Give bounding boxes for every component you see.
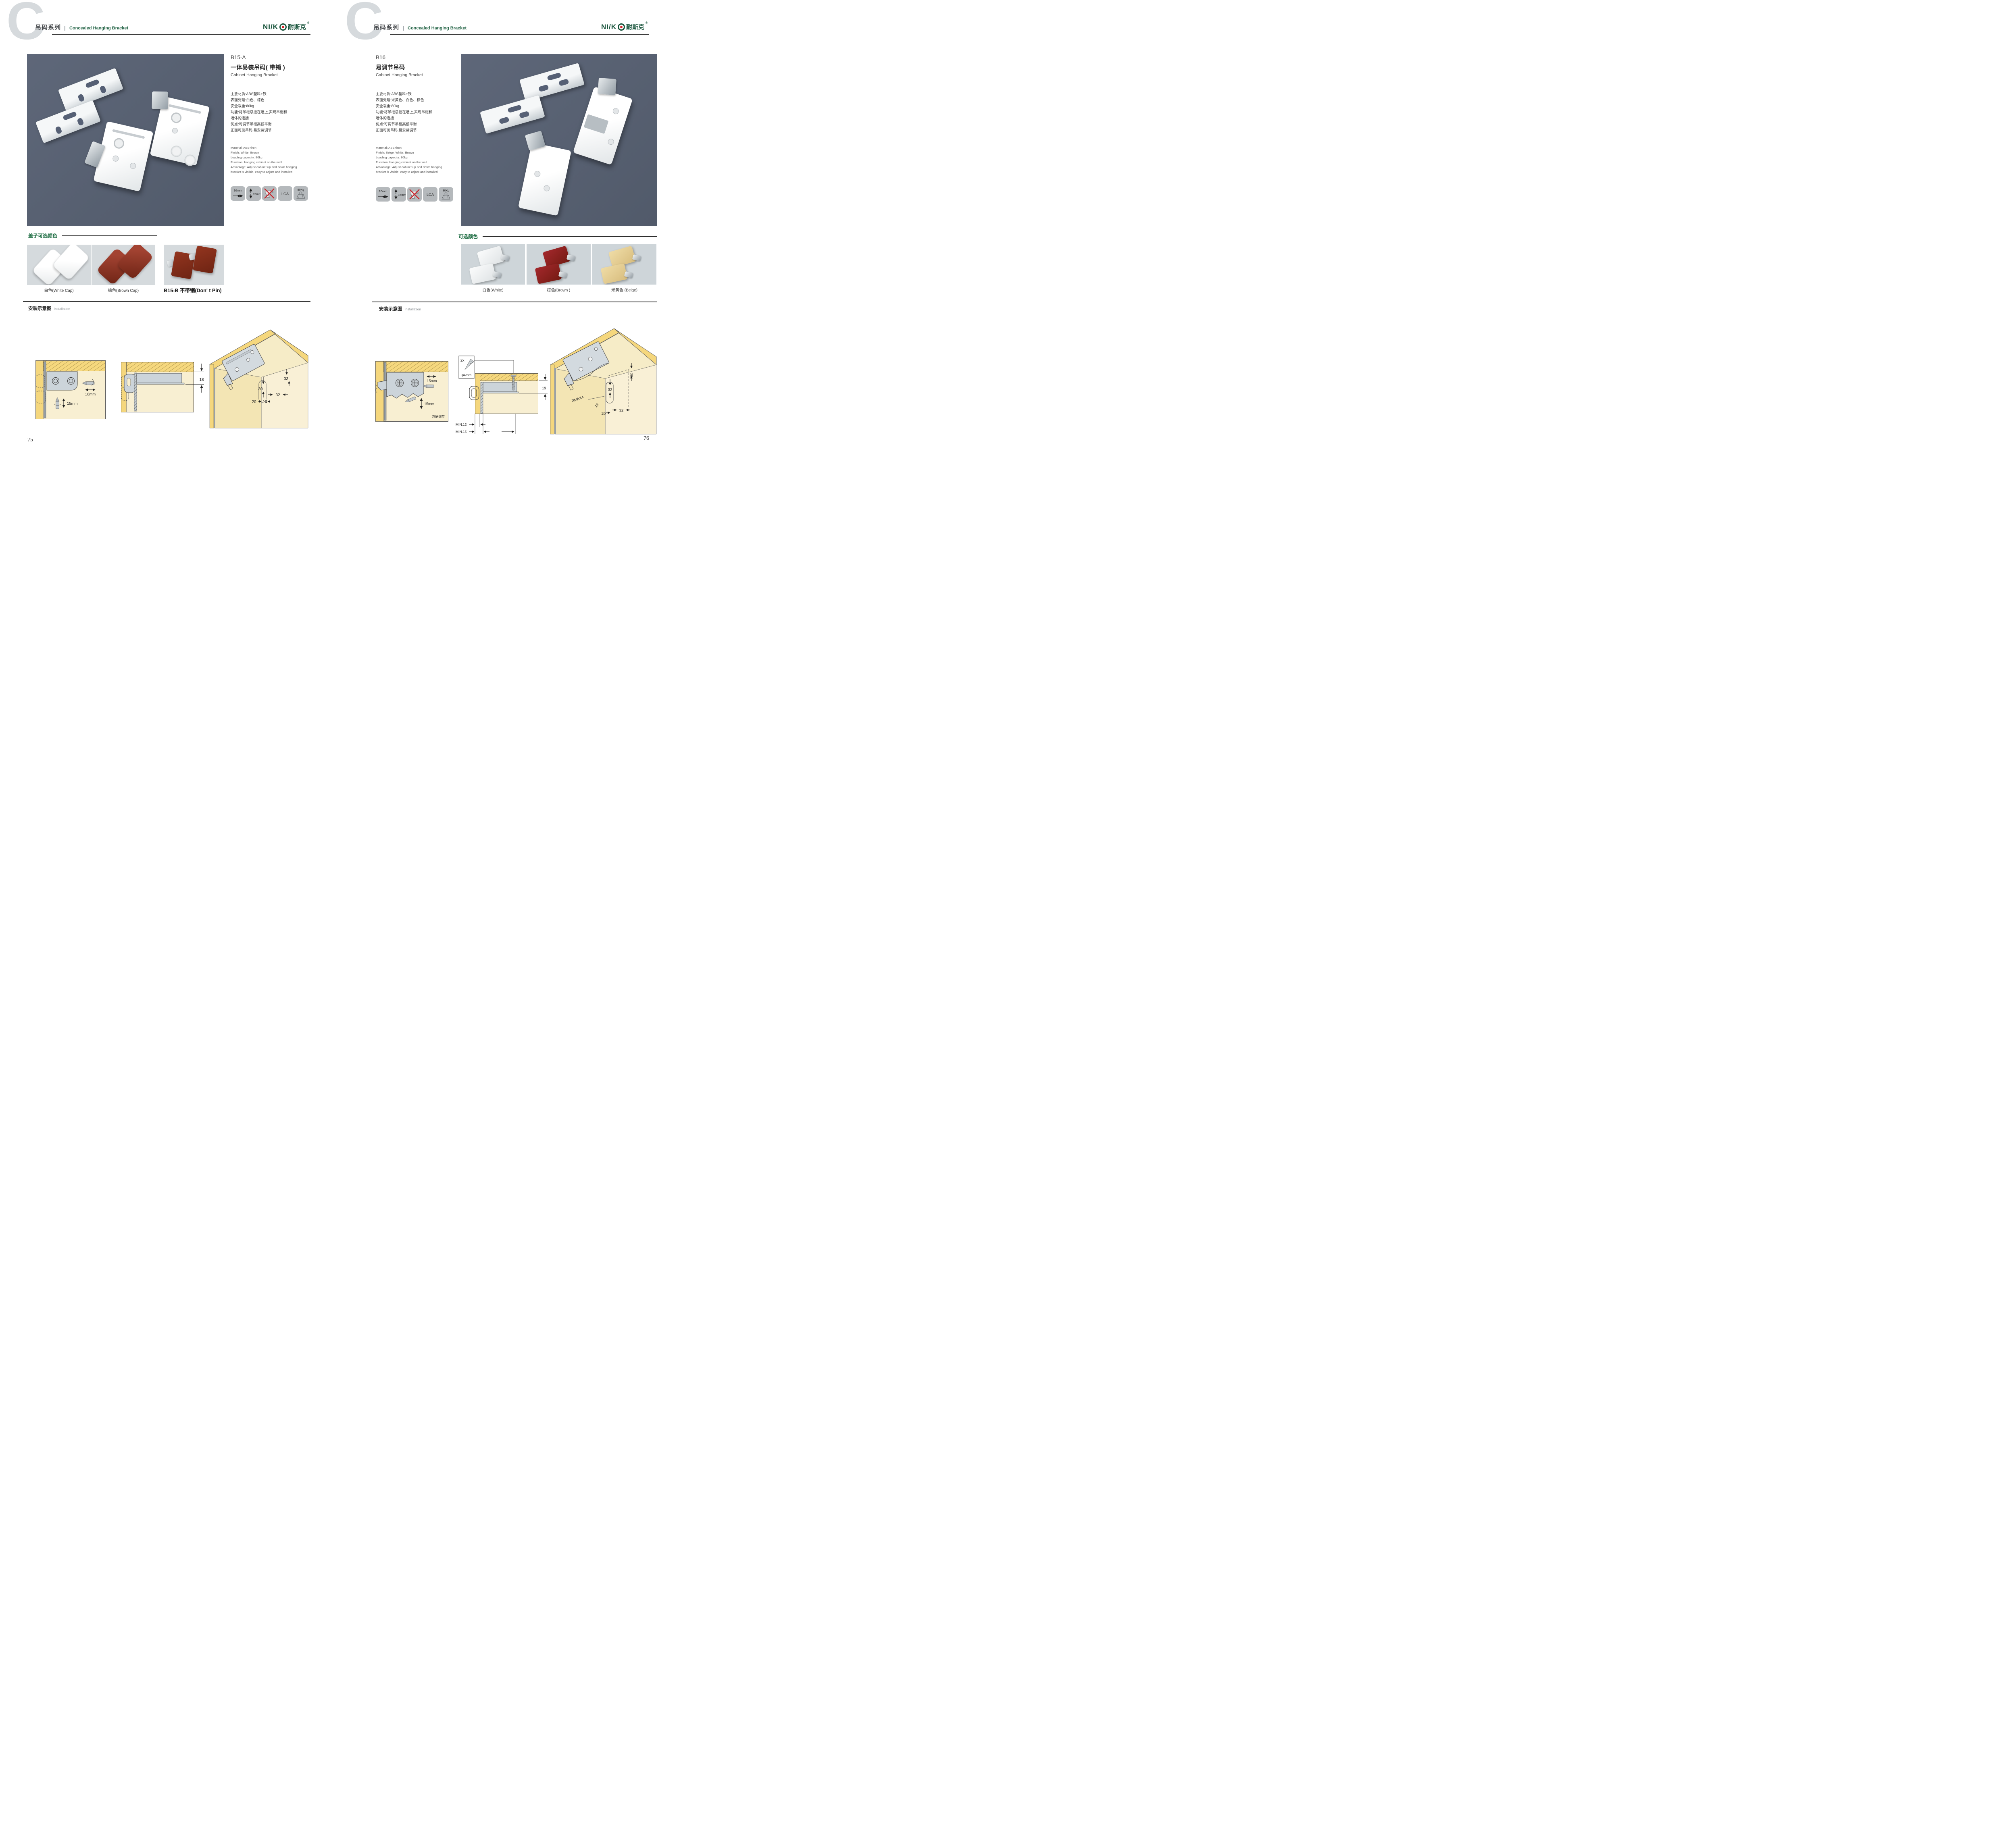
svg-text:LGA: LGA <box>427 193 434 197</box>
product-name-cn: 易调节吊码 <box>376 63 405 71</box>
v-arrow-icon: 15mm <box>392 187 406 201</box>
page-number: 76 <box>644 435 649 442</box>
svg-text:30: 30 <box>630 373 634 377</box>
colors-title: 可选颜色 <box>458 233 478 240</box>
brand-logo-latin: NI/K <box>601 23 616 31</box>
no-drill-glyph <box>408 187 421 201</box>
rail-slot <box>507 105 522 113</box>
adjust-knob <box>170 145 183 158</box>
install-diagram-section-front: 15mm 15mm 方便调节 <box>375 361 448 422</box>
spec-line: 优点:可调节吊柜高低平衡 <box>376 121 462 127</box>
rail-slot <box>62 111 77 121</box>
hanging-bracket-shape <box>573 87 633 165</box>
svg-text:15mm: 15mm <box>427 379 437 383</box>
swatch-white-cap <box>27 245 91 285</box>
rail-slot <box>55 126 62 134</box>
install-diagram-section-side: 18 <box>121 362 206 414</box>
specs-cn: 主要材质:ABS塑料+铁 表面处理:米黄色、白色、棕色 安全载重:80kg 功能… <box>376 91 462 133</box>
brand-logo-ring-icon <box>279 23 287 31</box>
svg-text:20: 20 <box>602 412 606 416</box>
bracket-shape <box>600 263 627 284</box>
brand-logo: NI/K 耐斯克 ® <box>263 23 309 31</box>
swatch-label: 米黄色 (Beige) <box>592 287 656 293</box>
brand-logo-dot-icon <box>620 26 623 28</box>
load-glyph: 80Kg <box>439 187 453 201</box>
bracket-hole <box>534 171 541 178</box>
swatch-b15b <box>164 245 224 285</box>
no-drill-glyph <box>262 187 276 200</box>
bracket-shape <box>193 245 217 274</box>
colors-title-rule <box>483 236 657 237</box>
svg-text:MIN.12: MIN.12 <box>456 422 467 426</box>
series-title: 吊码系列 <box>373 23 399 31</box>
specs-en: Material: ABS+iron Finish: White, Brown … <box>231 146 319 175</box>
svg-text:20: 20 <box>252 400 256 404</box>
spec-line: 表面处理:白色、棕色 <box>231 97 317 103</box>
installation-title-en: Installation <box>54 307 71 311</box>
bracket-hole <box>543 185 550 192</box>
lga-glyph: LGA <box>278 187 292 200</box>
svg-text:15mm: 15mm <box>398 193 406 197</box>
spec-line: bracket is visible, easy to adjust and i… <box>376 170 464 175</box>
spec-line: Function: hanging cabinet on the wall <box>376 160 464 165</box>
spec-line: 墙体的连接 <box>376 115 462 121</box>
bracket-hole <box>607 138 615 146</box>
spec-line: Advantage: Adjust cabinet up and down ha… <box>231 165 319 170</box>
specs-en: Material: ABS+iron Finish: Beige, White,… <box>376 146 464 175</box>
spec-line: 安全载重:80kg <box>376 103 462 109</box>
swatch-beige <box>592 244 656 285</box>
spec-line: 安全载重:80kg <box>231 103 317 109</box>
svg-text:15mm: 15mm <box>424 402 434 406</box>
lga-glyph: LGA <box>423 187 437 201</box>
svg-text:15mm: 15mm <box>67 401 77 406</box>
spec-line: 墙体的连接 <box>231 115 317 121</box>
install-diagram-perspective: 30 32 RMAX4 19 20 32 <box>550 328 657 435</box>
brand-logo-ring-icon <box>618 23 625 31</box>
spec-line: Loading capacity: 80kg <box>231 155 319 160</box>
spec-line: 正面可见吊码,易安装调节 <box>376 127 462 133</box>
svg-text:LGA: LGA <box>281 192 289 196</box>
svg-text:φ4mm: φ4mm <box>462 373 471 377</box>
adjust-knob <box>183 154 197 167</box>
rail-slot <box>499 116 510 124</box>
metal-hook-shape <box>598 78 616 95</box>
series-subtitle: Concealed Hanging Bracket <box>65 26 128 31</box>
bracket-shape <box>535 263 562 284</box>
colors-section-header: 盖子可选颜色 <box>28 232 157 239</box>
page-number: 75 <box>27 437 33 443</box>
install-diagram-section-front: 16mm 15mm <box>35 360 106 419</box>
spec-line: Loading capacity: 80kg <box>376 155 464 160</box>
section-divider <box>372 302 657 302</box>
bracket-hole <box>112 155 119 162</box>
wall-rail-shape <box>480 95 545 134</box>
product-photo-b15a <box>27 54 224 226</box>
bracket-shape <box>469 263 496 284</box>
h-arrow-icon: 16mm <box>231 187 245 200</box>
catalog-spread: C 吊码系列 Concealed Hanging Bracket NI/K 耐斯… <box>0 0 676 462</box>
svg-text:32: 32 <box>619 408 624 413</box>
swatch-label: 棕色(Brown ) <box>527 287 591 293</box>
spec-line: Finish: Beige, White, Brown <box>376 150 464 155</box>
hanging-bracket-shape <box>93 121 153 192</box>
product-photo-b16 <box>461 54 657 226</box>
spec-line: 正面可见吊码,易安装调节 <box>231 127 317 133</box>
height-icon: 15mm <box>392 187 406 202</box>
page-header: 吊码系列 Concealed Hanging Bracket <box>373 23 467 31</box>
brand-logo-dot-icon <box>282 26 284 28</box>
metal-hook-shape <box>84 141 106 168</box>
spec-line: bracket is visible, easy to adjust and i… <box>231 170 319 175</box>
spec-line: 优点:可调节吊柜高低平衡 <box>231 121 317 127</box>
colors-title-rule <box>62 235 157 236</box>
rail-slot <box>85 79 100 88</box>
rail-slot <box>99 85 107 94</box>
hanging-bracket-shape <box>518 142 571 216</box>
registered-mark: ® <box>307 22 309 25</box>
svg-text:19: 19 <box>542 386 546 391</box>
product-name-cn: 一体易装吊码( 带销 ) <box>231 63 285 71</box>
svg-text:16mm: 16mm <box>234 189 242 192</box>
bracket-screw <box>170 112 183 124</box>
svg-text:10mm: 10mm <box>379 189 387 193</box>
feature-icons: 10mm 15mm LGA 80K <box>376 187 453 202</box>
installation-title-cn: 安装示意图 <box>379 306 402 312</box>
hanging-bracket-shape <box>150 96 210 166</box>
page-header: 吊码系列 Concealed Hanging Bracket <box>35 23 128 31</box>
bracket-hole <box>612 107 620 115</box>
h-arrow-icon: 10mm <box>376 187 390 201</box>
load-glyph: 80Kg <box>294 187 308 200</box>
no-drill-icon <box>262 186 277 201</box>
install-diagram-section-side: 2x φ4mm 19 MIN.12 <box>455 355 550 435</box>
swatch-label: 白色(White Cap) <box>27 287 91 293</box>
wall-rail-shape <box>519 63 585 102</box>
spec-line: 主要材质:ABS塑料+铁 <box>376 91 462 97</box>
svg-text:80Kg: 80Kg <box>443 189 449 192</box>
brand-logo: NI/K 耐斯克 ® <box>601 23 648 31</box>
spec-line: Advantage: Adjust cabinet up and down ha… <box>376 165 464 170</box>
product-code: B15-A <box>231 54 246 60</box>
product-name-en: Cabinet Hanging Bracket <box>231 73 278 77</box>
load-icon: 80Kg <box>439 187 453 202</box>
bracket-slit <box>169 104 201 114</box>
spec-line: 功能:将吊柜悬挂在墙上,实现吊柜和 <box>376 109 462 115</box>
rail-slot <box>547 73 561 81</box>
spec-line: Material: ABS+iron <box>376 146 464 150</box>
svg-text:30: 30 <box>258 387 263 391</box>
header-rule <box>52 34 310 35</box>
installation-title-cn: 安装示意图 <box>28 305 52 312</box>
rail-slot <box>538 84 549 92</box>
spec-line: Finish: White, Brown <box>231 150 319 155</box>
height-icon: 15mm <box>246 186 261 201</box>
rail-slot <box>77 94 85 102</box>
phillips-screw <box>411 379 419 387</box>
cert-icon: LGA <box>423 187 437 202</box>
metal-hook-shape <box>152 92 168 110</box>
colors-title: 盖子可选颜色 <box>28 232 57 239</box>
series-title: 吊码系列 <box>35 23 61 31</box>
brand-logo-cn: 耐斯克 <box>626 23 644 31</box>
spec-line: Material: ABS+iron <box>231 146 319 150</box>
swatch-label: 白色(White) <box>461 287 525 293</box>
specs-cn: 主要材质:ABS塑料+铁 表面处理:白色、棕色 安全载重:80kg 功能:将吊柜… <box>231 91 317 133</box>
v-arrow-icon: 15mm <box>247 187 260 200</box>
spec-line: 表面处理:米黄色、白色、棕色 <box>376 97 462 103</box>
brand-logo-latin: NI/K <box>263 23 278 31</box>
install-diagram-perspective: 33 30 32 20 14 <box>209 329 309 429</box>
bracket-hole <box>129 162 137 169</box>
metal-hook-shape <box>525 131 546 151</box>
load-icon: 80Kg <box>294 186 308 201</box>
swatch-brown-cap <box>92 245 155 285</box>
swatch-brown <box>527 244 591 285</box>
width-icon: 16mm <box>231 186 245 201</box>
svg-text:32: 32 <box>275 393 280 397</box>
spec-line: Function: hanging cabinet on the wall <box>231 160 319 165</box>
svg-text:33: 33 <box>284 377 289 381</box>
installation-header: 安装示意图 Installation <box>379 306 421 312</box>
rail-slot <box>519 111 530 119</box>
svg-text:2x: 2x <box>460 358 464 362</box>
swatch-label: 棕色(Brown Cap) <box>92 287 155 293</box>
swatch-label-b15b: B15-B 不带销(Don' t Pin) <box>150 286 235 294</box>
svg-text:32: 32 <box>608 388 612 392</box>
swatch-white <box>461 244 525 285</box>
width-icon: 10mm <box>376 187 390 202</box>
rail-slot <box>77 117 84 126</box>
bracket-screw <box>112 137 125 150</box>
svg-text:18: 18 <box>199 378 204 382</box>
installation-header: 安装示意图 Installation <box>28 305 70 312</box>
svg-text:MIN.15: MIN.15 <box>456 430 467 434</box>
bracket-hole <box>171 127 178 134</box>
spec-line: 主要材质:ABS塑料+铁 <box>231 91 317 97</box>
colors-section-header: 可选颜色 <box>458 233 657 240</box>
series-subtitle: Concealed Hanging Bracket <box>403 26 467 31</box>
rail-slot <box>558 79 569 86</box>
installation-title-en: Installation <box>405 307 421 311</box>
phillips-screw <box>396 379 404 387</box>
no-drill-icon <box>407 187 422 202</box>
registered-mark: ® <box>646 22 648 25</box>
svg-text:方便调节: 方便调节 <box>432 414 445 418</box>
brand-logo-cn: 耐斯克 <box>288 23 306 31</box>
cert-icon: LGA <box>278 186 292 201</box>
spec-line: 功能:将吊柜悬挂在墙上,实现吊柜和 <box>231 109 317 115</box>
product-code: B16 <box>376 54 385 60</box>
svg-text:16mm: 16mm <box>85 392 96 397</box>
svg-text:14: 14 <box>262 400 267 404</box>
header-rule <box>390 34 649 35</box>
bracket-slit <box>584 114 609 134</box>
svg-text:80Kg: 80Kg <box>298 189 304 191</box>
svg-text:15mm: 15mm <box>253 192 260 196</box>
product-name-en: Cabinet Hanging Bracket <box>376 73 423 77</box>
section-divider <box>23 301 310 302</box>
feature-icons: 16mm 15mm LGA 80K <box>231 186 308 201</box>
bracket-slit <box>112 129 145 139</box>
